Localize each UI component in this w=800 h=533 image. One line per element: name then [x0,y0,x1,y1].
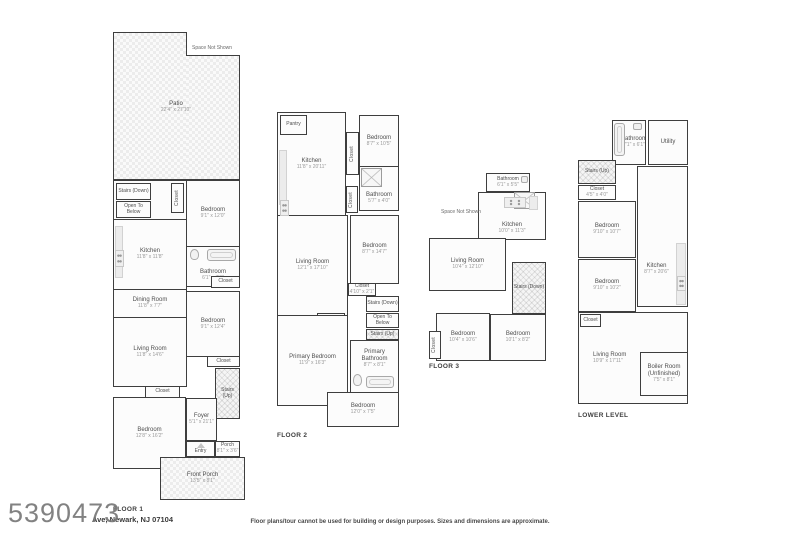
floor1-porch: Porch 8'1" x 3'6" [215,441,240,457]
room-name: Closet [350,146,356,162]
floor2-bedroom-mid: Bedroom 8'7" x 14'7" [350,215,399,284]
lower-closet-top: Closet 4'5" x 4'0" [578,185,616,200]
lower-utility: Utility [648,120,688,165]
floor1-front-porch: Front Porch 13'5" x 8'1" [160,457,245,500]
room-name: Closet [175,190,181,206]
room-dims: 11'8" x 20'11" [297,165,326,171]
floor1-foyer: Foyer 5'1" x 21'1" [186,398,217,441]
floor2-living-room: Living Room 12'1" x 17'10" [277,215,348,316]
floor1-patio-left [113,32,187,180]
room-dims: 8'7" x 10'5" [367,142,392,148]
floor1-closet-top: Closet [171,183,184,213]
counter-icon [676,243,686,305]
floorplan-sheet: Patio 22'4" x 27'10" Space Not Shown Bed… [0,0,800,533]
floor3-living-room: Living Room 10'4" x 12'10" [429,238,506,291]
bathtub-icon [614,123,625,156]
floor2-bedroom-bottom: Bedroom 12'0" x 7'5" [327,392,399,427]
room-dims: 12'0" x 7'5" [351,410,376,416]
bathtub-icon [366,376,394,388]
room-dims: 9'10" x 10'2" [593,286,620,292]
room-name: Closet [583,318,597,324]
floor1-closet-bath: Closet [211,276,240,288]
room-dims: 6'1" x 5'5" [497,183,519,189]
room-name: Stairs (Up) [216,388,239,400]
lower-level-label: LOWER LEVEL [578,412,628,419]
floor2-closet-mid: Closet 4'10" x 2'1" [348,283,376,296]
floor3-closet: Closet [429,331,441,359]
floor1-patio-right [186,55,240,180]
room-name: Stairs (Down) [367,301,397,307]
floor3-stairs-down: Stairs (Down) [512,262,546,314]
room-dims: 11'8" x 7'7" [138,304,162,310]
room-name: Open To Below [367,315,398,327]
floor1-living-room: Living Room 11'8" x 14'6" [113,317,187,387]
lower-stairs-up: Stairs (Up) [578,160,616,184]
floor1-open-to-below: Open To Below [116,201,151,218]
floor2-bedroom-top: Bedroom 8'7" x 10'5" [359,115,399,167]
floor2-label: FLOOR 2 [277,432,307,439]
room-name: Closet [432,337,438,353]
floor2-closet-bath: Closet [346,186,358,213]
floor1-closet-mid: Closet [207,356,240,367]
floor2-pantry: Pantry [280,115,307,135]
counter-icon [529,196,538,210]
floor2-closet-kitchen: Closet [346,132,359,175]
floor2-stairs-up: Stairs (Up) [366,329,399,340]
bathtub-icon [207,249,236,261]
room-name: Closet [155,389,169,395]
room-dims: 10'4" x 12'10" [452,265,482,271]
room-dims: 9'10" x 10'7" [593,230,620,236]
floor1-entry: Entry [186,441,215,457]
room-dims: 10'4" x 10'6" [449,338,476,344]
floor3-bedroom-left: Bedroom 10'4" x 10'6" [436,313,490,361]
room-name: Stairs (Up) [585,169,609,175]
lower-closet-living: Closet [580,314,601,327]
sink-icon [521,176,528,183]
room-name: Entry [195,449,207,455]
room-name: Pantry [286,122,300,128]
room-dims: 12'1" x 17'10" [297,266,327,272]
room-name: Closet [218,279,232,285]
room-name: Primary Bathroom [351,349,398,363]
room-dims: 7'1" x 6'1" [623,143,645,149]
floor1-dining-room: Dining Room 11'8" x 7'7" [113,289,187,318]
room-dims: 8'7" x 8'1" [364,363,386,369]
floor1-bedroom-mid: Bedroom 9'1" x 12'4" [186,291,240,357]
floor3-space-not-shown: Space Not Shown [430,209,492,215]
room-dims: 10'1" x 8'2" [506,338,531,344]
toilet-icon [353,374,362,386]
room-dims: 5'7" x 4'0" [368,199,390,205]
floor1-space-not-shown: Space Not Shown [184,45,240,51]
room-dims: 12'8" x 16'2" [136,434,163,440]
room-name: Stairs (Down) [118,189,148,195]
floor3-label: FLOOR 3 [429,363,459,370]
room-name: Stairs (Down) [514,285,544,291]
room-name: Open To Below [117,204,150,216]
room-dims: 13'5" x 8'1" [190,479,215,485]
floor1-stairs-down: Stairs (Down) [116,183,151,200]
sink-icon [633,123,642,130]
floor1-kitchen: Kitchen 11'8" x 11'8" [113,219,187,290]
room-dims: 11'9" x 16'3" [299,361,326,367]
lower-bedroom-mid: Bedroom 9'10" x 10'2" [578,259,636,312]
stove-icon [280,200,289,216]
room-name: Closet [349,192,355,208]
room-dims: 4'5" x 4'0" [586,193,608,199]
room-dims: 11'8" x 14'6" [136,353,163,359]
floor1-bedroom-top: Bedroom 9'1" x 12'0" [186,180,240,247]
room-dims: 10'9" x 17'11" [593,359,623,365]
room-name: Utility [661,139,676,146]
room-dims: 8'7" x 20'6" [644,270,669,276]
floor2-open-to-below: Open To Below [366,313,399,328]
room-dims: 9'1" x 12'4" [201,325,226,331]
toilet-icon [190,249,199,260]
room-dims: 10'0" x 11'3" [498,229,525,235]
room-dims: 11'8" x 11'8" [137,255,164,261]
room-dims: 4'10" x 2'1" [350,290,375,296]
room-name: Boiler Room [647,364,680,371]
stove-icon [677,276,686,291]
stove-icon [115,250,124,267]
room-dims: 9'1" x 12'0" [201,214,226,220]
room-dims: 8'1" x 3'6" [217,449,239,455]
room-name: Stairs (Up) [371,332,395,338]
lower-bedroom-top: Bedroom 9'10" x 10'7" [578,201,636,258]
counter-icon [279,150,287,205]
stove-icon [504,197,526,208]
lower-boiler-room: Boiler Room (Unfinished) 7'5" x 8'1" [640,352,688,396]
room-dims: 7'5" x 8'1" [653,378,675,384]
floor3-bedroom-right: Bedroom 10'1" x 8'2" [490,314,546,361]
room-dims: 5'1" x 21'1" [189,420,214,426]
floor1-stairs-up: Stairs (Up) [215,368,240,419]
floor2-stairs-down: Stairs (Down) [366,296,399,312]
room-name: Closet [216,359,230,365]
shower-icon [361,168,382,187]
room-dims: 8'7" x 14'7" [362,250,387,256]
mls-number-watermark: 5390473 [8,498,120,529]
